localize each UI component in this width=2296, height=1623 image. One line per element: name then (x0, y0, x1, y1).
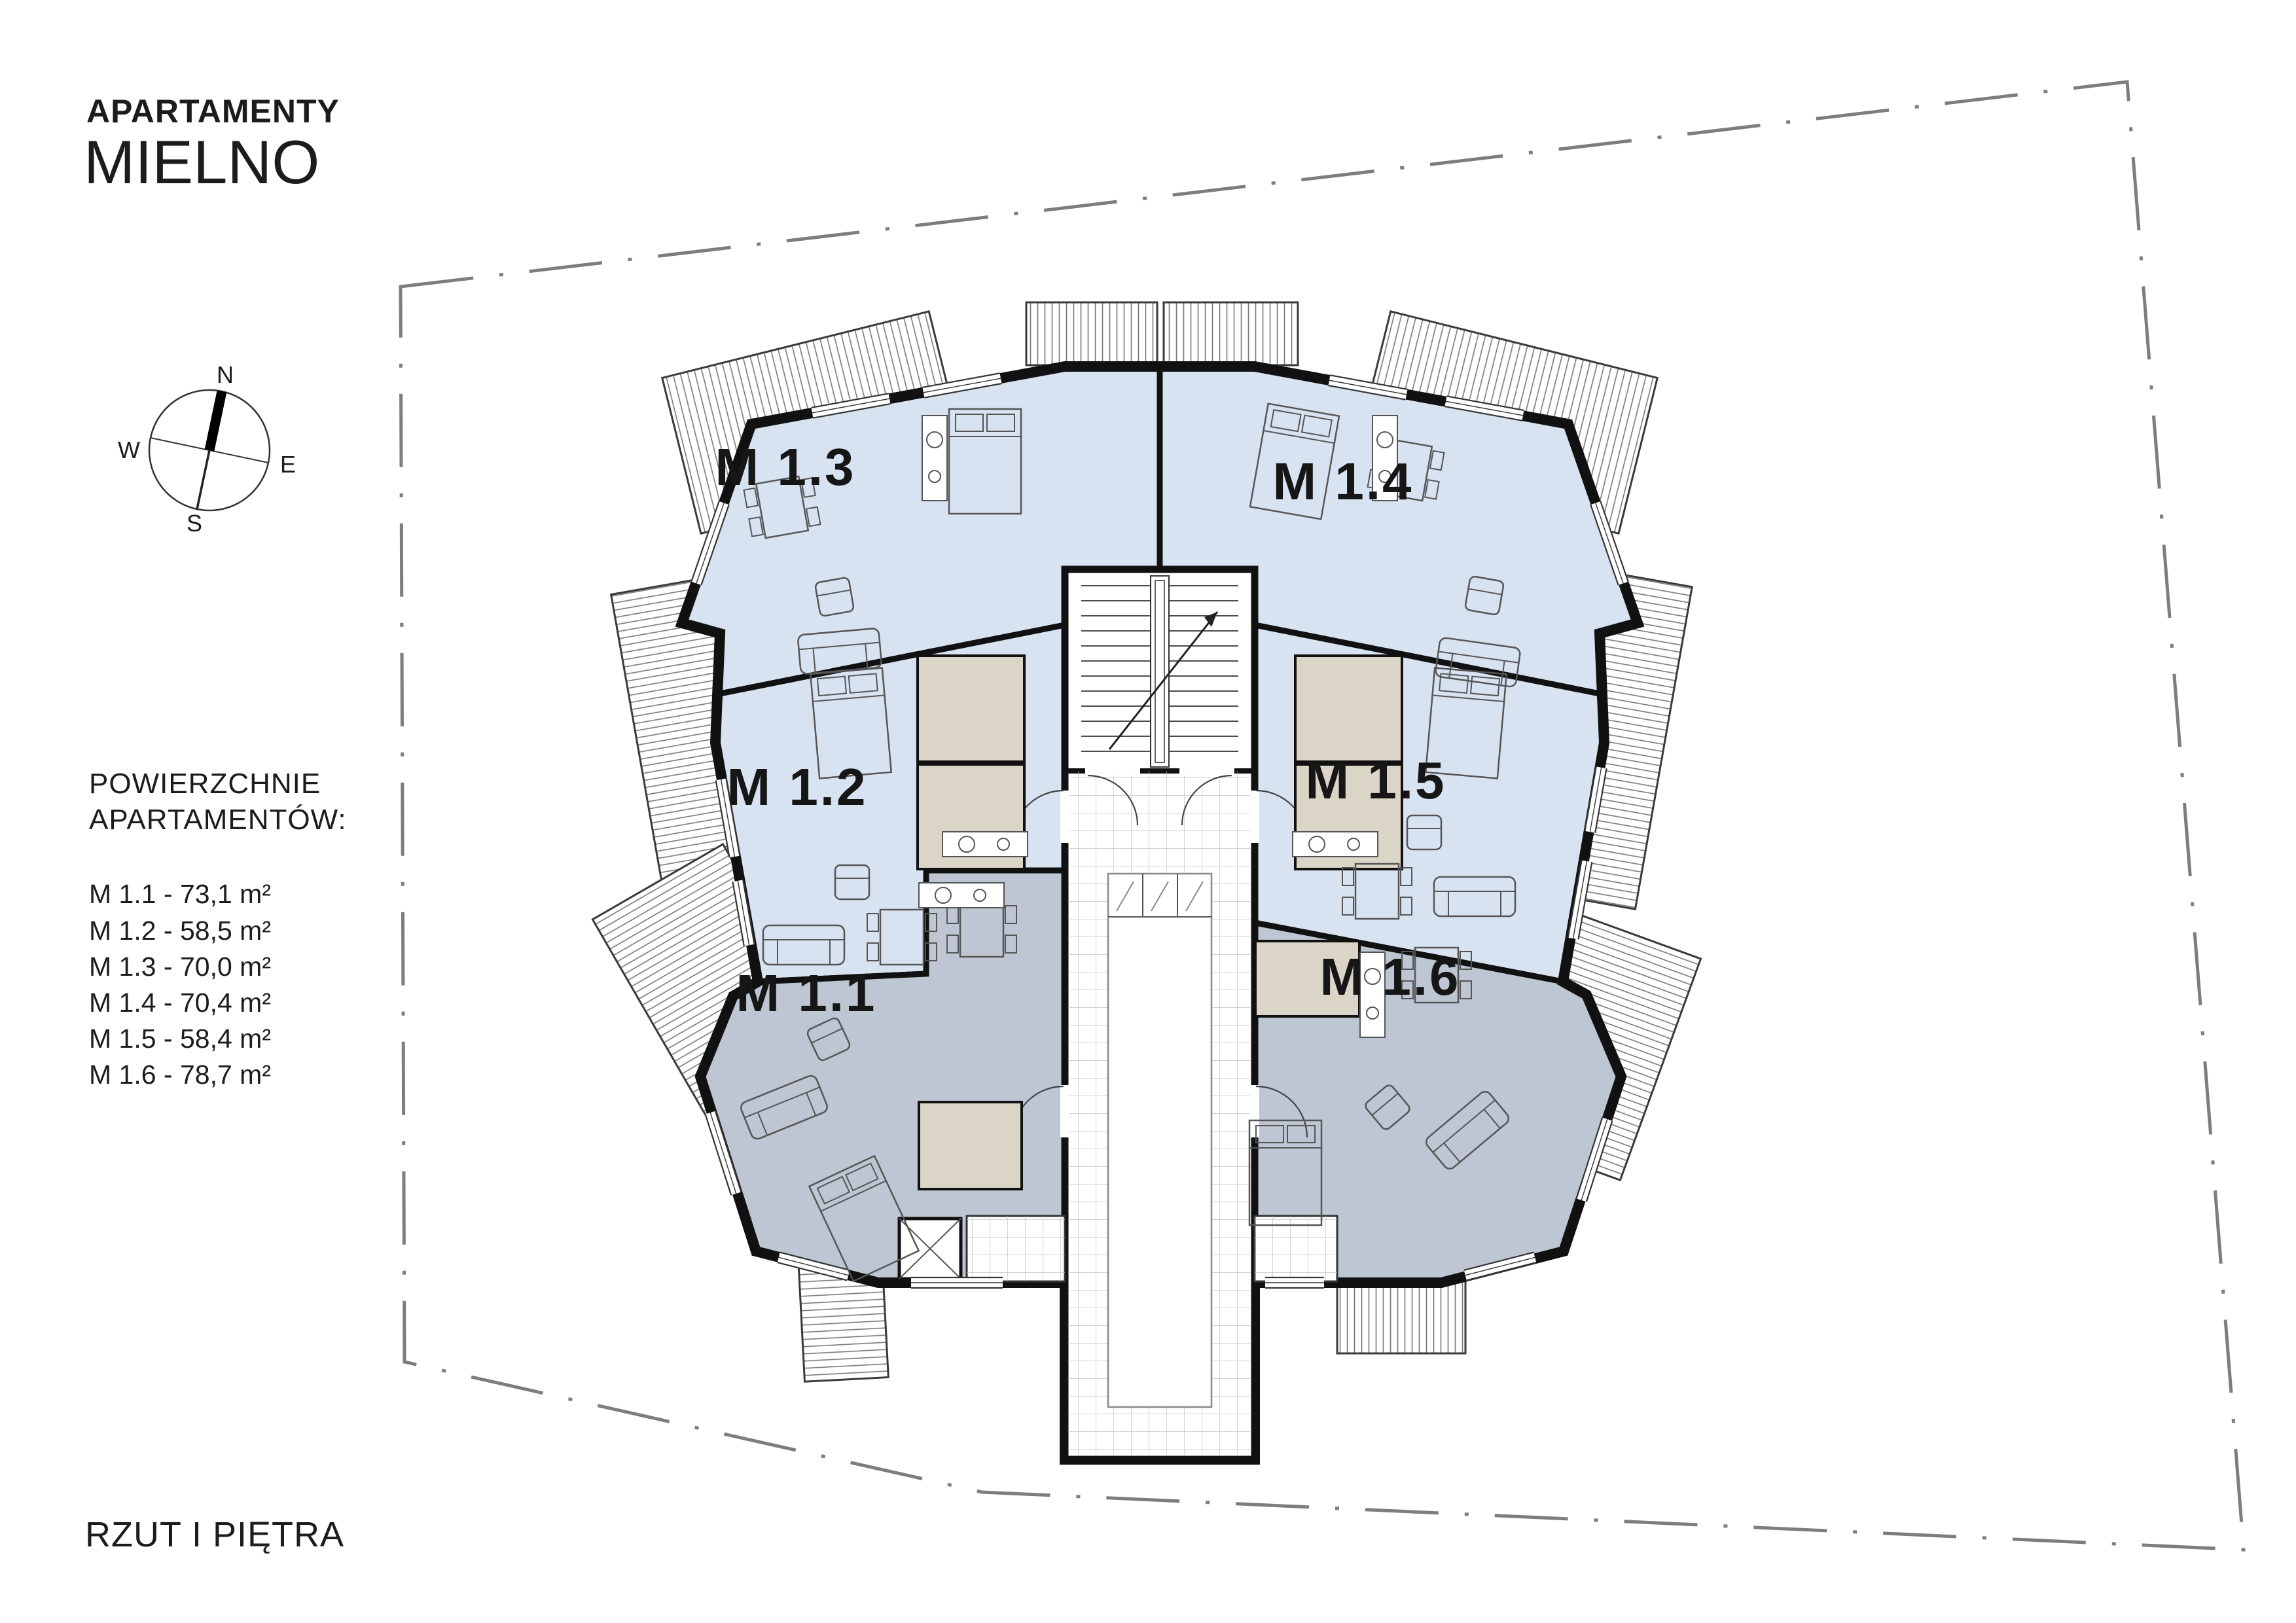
bathroom-m1-1 (919, 1102, 1022, 1189)
furniture-counter (1293, 832, 1378, 857)
compass-icon: N E S W (118, 361, 296, 537)
legend: POWIERZCHNIE APARTAMENTÓW: M 1.1 - 73,1 … (89, 768, 347, 1090)
furniture-counter (919, 883, 1004, 908)
bathroom-m1-3 (918, 656, 1024, 762)
furniture-counter (942, 832, 1028, 857)
lightwell (1108, 874, 1211, 1407)
compass-label-s: S (187, 510, 202, 537)
window-icon (1265, 1277, 1324, 1289)
label-m1-6: M 1.6 (1319, 948, 1460, 1006)
floor-plan-sheet: APARTAMENTY MIELNO N E S W POWIERZCHNIE … (0, 0, 2296, 1623)
balcony-top-right (1164, 302, 1298, 365)
legend-heading-line2: APARTAMENTÓW: (89, 804, 347, 836)
label-m1-5: M 1.5 (1305, 751, 1446, 810)
label-m1-1: M 1.1 (736, 964, 876, 1022)
title-block: APARTAMENTY MIELNO (84, 93, 340, 196)
compass-label-w: W (118, 437, 140, 463)
legend-heading-line1: POWIERZCHNIE (89, 768, 321, 800)
legend-item: M 1.4 - 70,4 m² (89, 988, 271, 1018)
legend-item: M 1.1 - 73,1 m² (89, 879, 271, 909)
project-title: APARTAMENTY (86, 93, 340, 130)
compass-needle-north (209, 391, 222, 450)
legend-item: M 1.3 - 70,0 m² (89, 952, 271, 982)
legend-item: M 1.6 - 78,7 m² (89, 1060, 271, 1090)
label-m1-3: M 1.3 (715, 438, 855, 496)
legend-item: M 1.2 - 58,5 m² (89, 916, 271, 946)
balcony-top-left (1026, 302, 1157, 365)
compass-label-n: N (217, 361, 234, 388)
project-subtitle: MIELNO (84, 128, 319, 196)
stair-stringer (1151, 576, 1169, 767)
window-icon (911, 1277, 1003, 1289)
label-m1-4: M 1.4 (1272, 452, 1413, 510)
furniture-counter (922, 416, 947, 501)
legend-item: M 1.5 - 58,4 m² (89, 1024, 271, 1054)
label-m1-2: M 1.2 (726, 758, 867, 816)
compass-label-e: E (280, 451, 296, 478)
bathroom-m1-4 (1295, 656, 1402, 762)
sheet-caption: RZUT I PIĘTRA (85, 1515, 344, 1554)
